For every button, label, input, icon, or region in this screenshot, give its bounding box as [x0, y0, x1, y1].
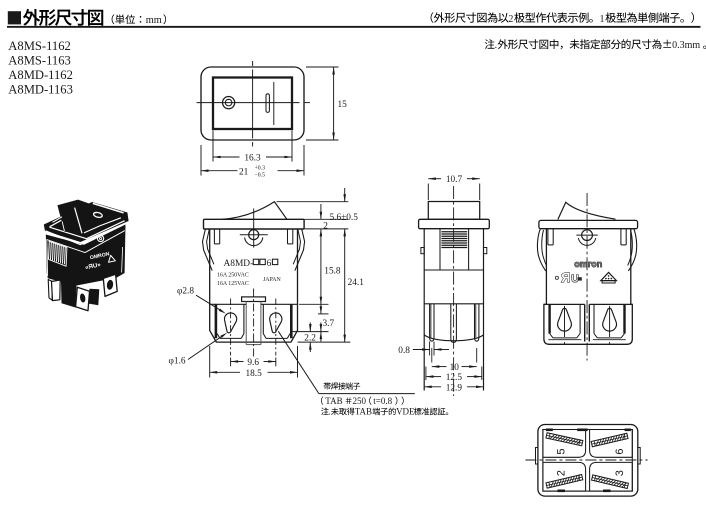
svg-text:16.3: 16.3	[244, 153, 261, 163]
svg-text:VDE: VDE	[396, 407, 415, 417]
svg-text:12.5: 12.5	[446, 373, 463, 383]
svg-text:6: 6	[267, 259, 272, 269]
svg-text:TAB: TAB	[325, 396, 342, 406]
svg-text:2: 2	[508, 14, 513, 25]
svg-text:3: 3	[614, 470, 626, 476]
svg-text:3.7: 3.7	[323, 319, 335, 329]
svg-text:16A 250VAC: 16A 250VAC	[217, 272, 249, 278]
svg-text:5: 5	[556, 449, 568, 455]
svg-text:A8MD-1162: A8MD-1162	[8, 68, 73, 82]
svg-text:omron: omron	[574, 259, 602, 269]
svg-text:−0.5: −0.5	[255, 173, 266, 179]
svg-text:TAB: TAB	[355, 407, 372, 417]
svg-text:24.1: 24.1	[348, 278, 365, 288]
svg-text:.: .	[329, 408, 331, 417]
svg-text:Я: Я	[561, 271, 570, 285]
svg-text:t=0.8: t=0.8	[373, 396, 392, 406]
svg-text:250: 250	[353, 396, 367, 406]
svg-text:18.5: 18.5	[245, 369, 262, 379]
svg-text:16A 125VAC: 16A 125VAC	[217, 281, 249, 287]
svg-text:15.8: 15.8	[324, 266, 341, 276]
svg-text:A8MD-1163: A8MD-1163	[8, 82, 73, 96]
svg-text:1: 1	[599, 14, 604, 25]
svg-text:2.2: 2.2	[304, 334, 316, 344]
svg-text:21: 21	[239, 168, 249, 178]
svg-text:2: 2	[556, 470, 568, 476]
svg-text:mm: mm	[146, 15, 162, 26]
svg-text:10.7: 10.7	[446, 175, 463, 185]
svg-text:φ1.6: φ1.6	[169, 357, 186, 367]
svg-text:5.6±0.5: 5.6±0.5	[330, 213, 359, 223]
svg-text:6: 6	[614, 449, 626, 455]
svg-text:12.9: 12.9	[446, 383, 463, 393]
svg-text:15: 15	[338, 100, 348, 110]
svg-text:9.6: 9.6	[247, 358, 259, 368]
svg-text:A8MD-: A8MD-	[224, 259, 254, 269]
svg-text:0.8: 0.8	[398, 346, 410, 356]
svg-text:JAPAN: JAPAN	[263, 277, 282, 283]
svg-text:A8MS-1163: A8MS-1163	[8, 53, 71, 67]
svg-text:+0.3: +0.3	[255, 166, 266, 172]
svg-text:2: 2	[323, 222, 328, 232]
svg-text:10: 10	[450, 363, 460, 373]
svg-text:A8MS-1162: A8MS-1162	[8, 39, 71, 53]
svg-text:0.3mm: 0.3mm	[672, 40, 700, 51]
svg-text:φ2.8: φ2.8	[177, 287, 194, 297]
svg-text:.: .	[495, 40, 498, 51]
